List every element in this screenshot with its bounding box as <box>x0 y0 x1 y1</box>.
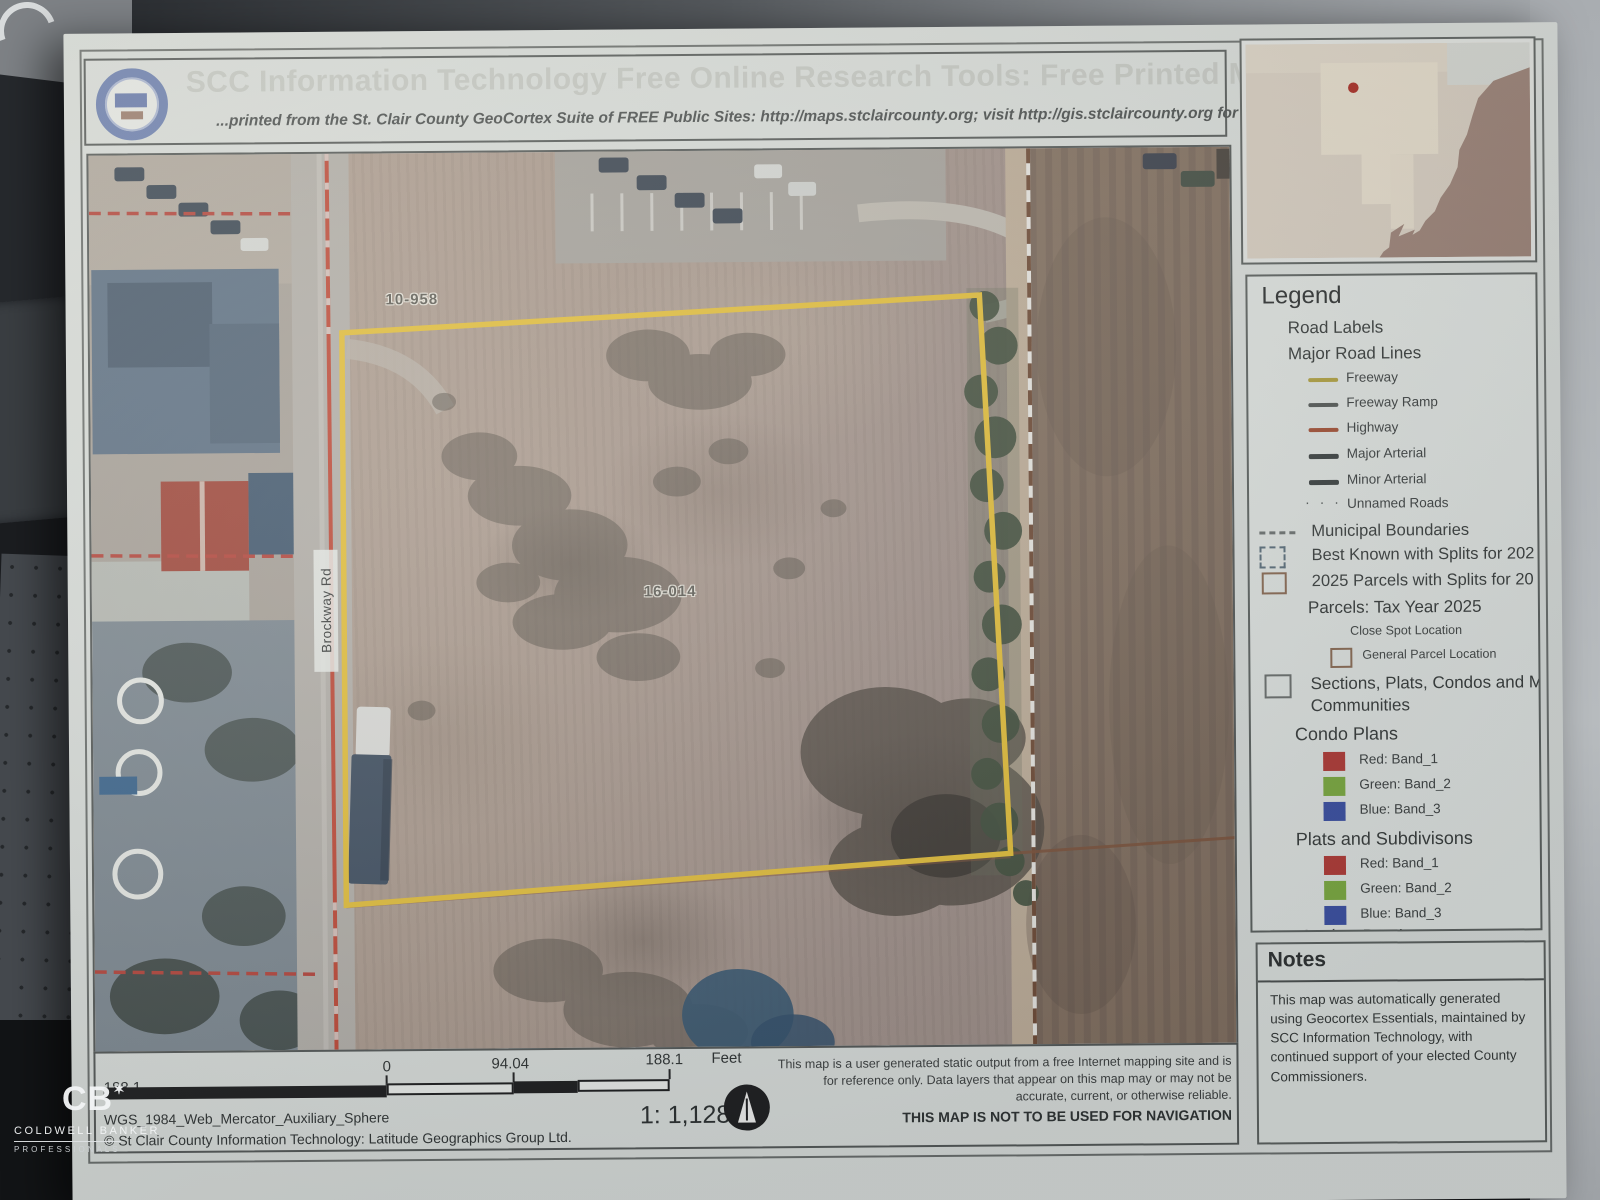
legend-item: Sections, Plats, Condos and M <box>1310 672 1542 694</box>
legend-item: Best Known with Splits for 202 <box>1311 544 1534 565</box>
notes-panel: Notes This map was automatically generat… <box>1256 940 1548 1144</box>
page-title: SCC Information Technology Free Online R… <box>186 57 1290 100</box>
legend-item: Freeway <box>1346 369 1398 384</box>
semi-truck <box>348 706 394 884</box>
legend-panel: Legend Road Labels Major Road Lines Free… <box>1245 272 1542 932</box>
locator-map <box>1239 36 1537 264</box>
scale-bar-segment <box>387 1082 514 1095</box>
legend-item: 2025 Parcels with Splits for 20 <box>1312 570 1534 591</box>
sections-box-swatch <box>1264 674 1291 698</box>
legend-item: Road Labels <box>1288 318 1384 339</box>
legend-item: Blue: Band_3 <box>1359 801 1440 817</box>
legend-item: General Parcel Location <box>1362 647 1496 662</box>
disclaimer-block: This map is a user generated static outp… <box>771 1053 1232 1126</box>
legend-item: Municipal Boundaries <box>1311 521 1469 541</box>
legend-item: Red: Band_1 <box>1359 751 1438 767</box>
major-arterial-line-swatch <box>1309 454 1339 459</box>
legend-item: Red: Band_1 <box>1360 855 1439 871</box>
star-icon: ✶ <box>113 1081 126 1097</box>
legend-item: Freeway Ramp <box>1346 394 1438 410</box>
notes-divider <box>1258 978 1544 982</box>
brand-logo: CB✶ <box>62 1082 160 1117</box>
page-header: SCC Information Technology Free Online R… <box>84 50 1228 146</box>
north-arrow-icon <box>724 1084 770 1130</box>
disclaimer-text: This map is a user generated static outp… <box>771 1053 1231 1107</box>
legend-item: Blue: Band_3 <box>1360 905 1441 921</box>
legend-item: Parcels: Tax Year 2025 <box>1308 597 1482 618</box>
blue-band-swatch <box>1323 802 1345 821</box>
legend-item: Highway <box>1346 419 1398 434</box>
notes-title: Notes <box>1268 948 1327 972</box>
highway-line-swatch <box>1309 428 1339 432</box>
green-band-swatch <box>1323 777 1345 796</box>
legend-item: Plats and Subdivisons <box>1296 828 1473 850</box>
brand-name: COLDWELL BANKER <box>14 1125 160 1137</box>
road-label: Brockway Rd <box>313 550 338 672</box>
freeway-ramp-line-swatch <box>1308 403 1338 407</box>
scale-mid-label: 94.04 <box>491 1055 529 1072</box>
general-parcel-box-swatch <box>1330 648 1352 668</box>
blue-band-swatch <box>1324 906 1346 925</box>
legend-item: Close Spot Location <box>1350 623 1462 638</box>
page-subtitle: ...printed from the St. Clair County Geo… <box>216 104 1296 130</box>
printed-map-page: SCC Information Technology Free Online R… <box>63 22 1566 1200</box>
municipal-boundary-dash-swatch <box>1259 531 1295 534</box>
scale-ratio: 1: 1,128 <box>640 1101 731 1131</box>
parcel-box-swatch <box>1262 572 1287 594</box>
scale-zero-label: 0 <box>382 1058 390 1075</box>
aerial-map: 10-958 16-014 Brockway Rd <box>86 145 1238 1054</box>
county-seal-logo <box>96 68 169 141</box>
dashed-box-swatch <box>1259 546 1285 568</box>
legend-item: Major Road Lines <box>1288 343 1421 364</box>
legend-item: Unnamed Roads <box>1347 495 1448 511</box>
minor-arterial-line-swatch <box>1309 480 1339 485</box>
scale-bar-segment <box>578 1079 670 1092</box>
legend-item: Condo Plans <box>1295 723 1398 745</box>
legend-item: Minor Arterial <box>1347 471 1427 487</box>
parcel-label-top: 10-958 <box>385 291 438 308</box>
legend-item: Major Arterial <box>1347 445 1427 461</box>
red-band-swatch <box>1324 856 1346 875</box>
scale-right-label: 188.1 <box>645 1051 683 1068</box>
legend-item: Communities <box>1311 695 1410 716</box>
freeway-line-swatch <box>1308 378 1338 382</box>
photo-of-printed-map: SCC Information Technology Free Online R… <box>0 0 1600 1200</box>
red-band-swatch <box>1323 752 1345 771</box>
notes-body: This map was automatically generated usi… <box>1270 988 1533 1086</box>
brand-subtitle: PROFESSIONALS <box>14 1141 121 1154</box>
scale-unit-label: Feet <box>711 1050 741 1067</box>
legend-item: Green: Band_2 <box>1359 776 1451 792</box>
scale-tick <box>669 1069 671 1079</box>
parcel-label-main: 16-014 <box>644 583 697 600</box>
unnamed-roads-dots-swatch: · · · <box>1305 494 1342 510</box>
brand-watermark: CB✶ COLDWELL BANKER PROFESSIONALS <box>14 1082 160 1157</box>
locator-marker <box>1348 82 1359 93</box>
legend-title: Legend <box>1261 282 1341 311</box>
field-scrub <box>405 328 851 1052</box>
green-band-swatch <box>1324 881 1346 900</box>
legend-item: Green: Band_2 <box>1360 880 1452 896</box>
scale-bar-segment <box>514 1081 578 1094</box>
